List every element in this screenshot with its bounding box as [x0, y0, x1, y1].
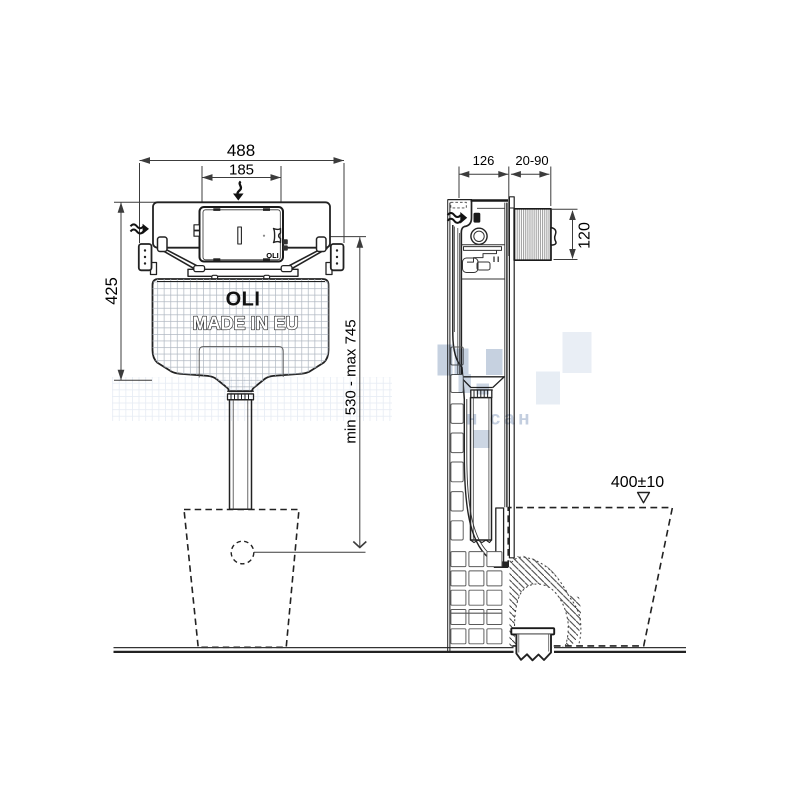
- svg-text:OLI: OLI: [266, 251, 279, 260]
- svg-text:488: 488: [227, 141, 255, 160]
- svg-text:н сан: н сан: [466, 409, 533, 430]
- svg-text:20-90: 20-90: [515, 153, 548, 168]
- svg-text:400±10: 400±10: [611, 474, 664, 491]
- svg-text:126: 126: [473, 153, 495, 168]
- svg-text:OLI: OLI: [226, 289, 261, 311]
- svg-text:185: 185: [229, 162, 254, 179]
- svg-text:MADE IN EU: MADE IN EU: [192, 314, 298, 334]
- svg-text:425: 425: [103, 277, 121, 305]
- svg-text:120: 120: [577, 222, 594, 249]
